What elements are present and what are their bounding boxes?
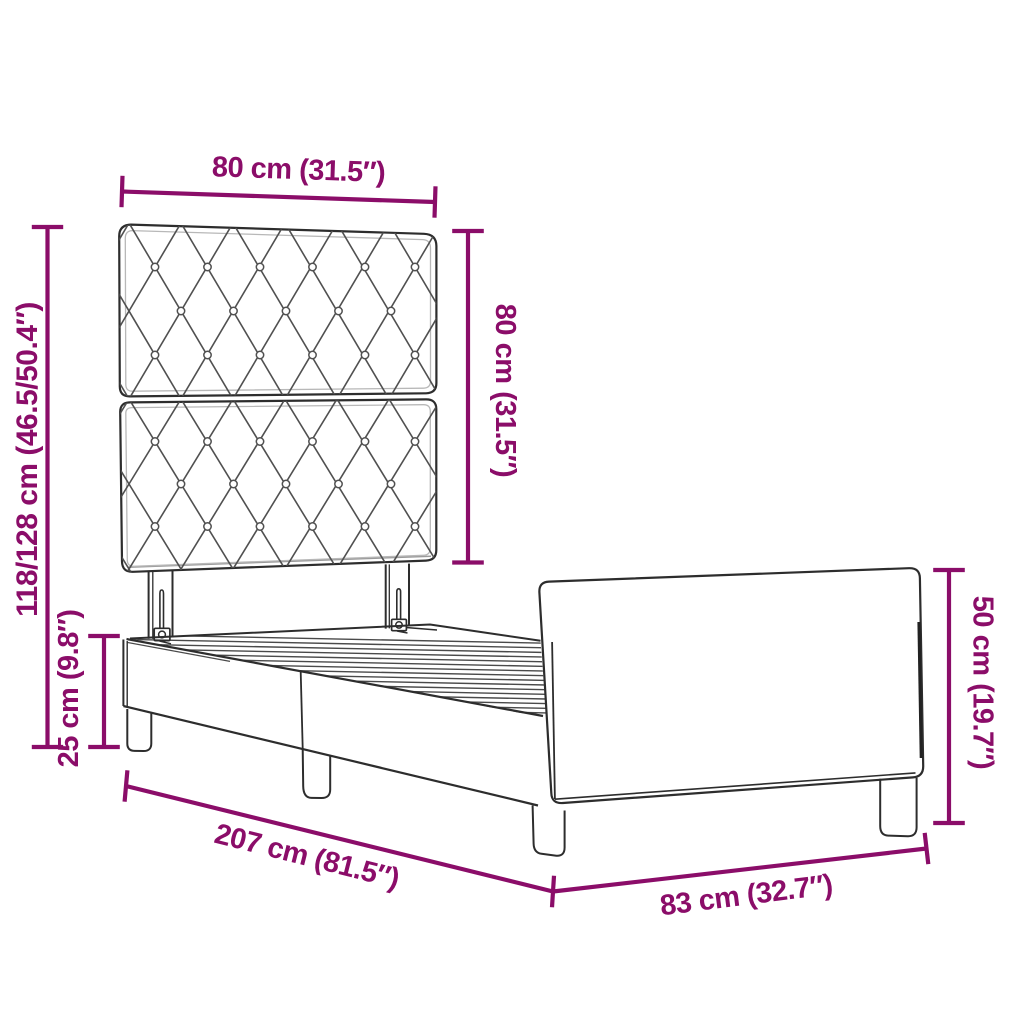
svg-text:118/128 cm (46.5/50.4″): 118/128 cm (46.5/50.4″) xyxy=(11,302,44,617)
svg-text:80 cm (31.5″): 80 cm (31.5″) xyxy=(489,304,521,477)
svg-text:80 cm (31.5″): 80 cm (31.5″) xyxy=(211,151,385,189)
svg-text:25 cm (9.8″): 25 cm (9.8″) xyxy=(53,610,85,768)
svg-text:50 cm (19.7″): 50 cm (19.7″) xyxy=(966,596,998,769)
